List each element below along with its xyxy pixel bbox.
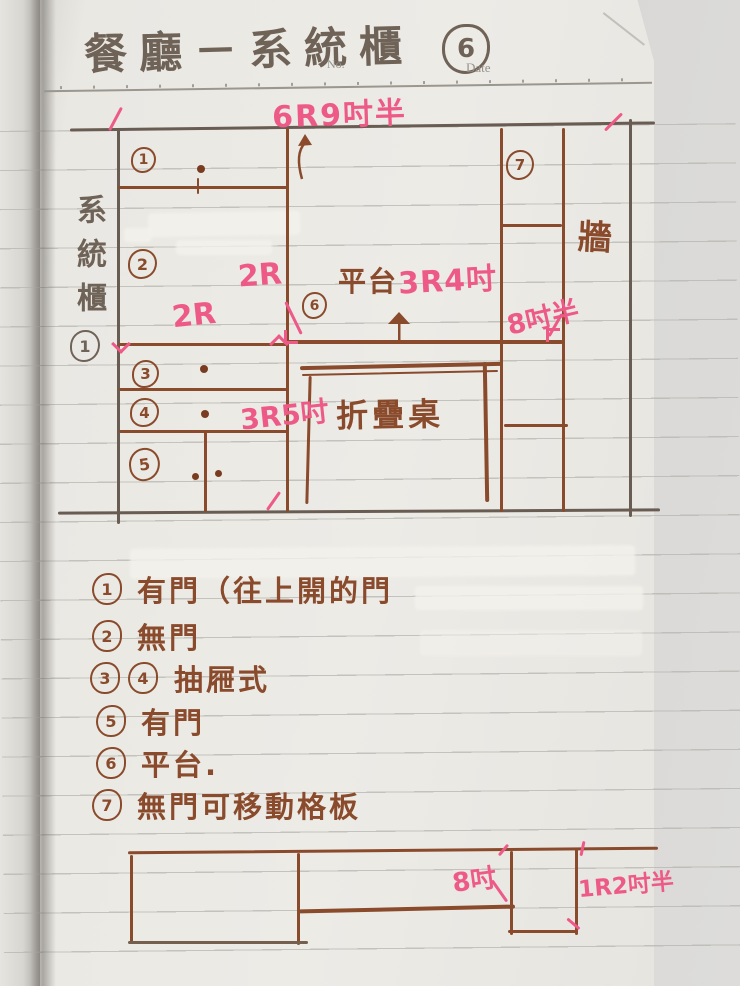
plan-left-box-bottom (128, 941, 308, 944)
legend-row: 2 無門 (92, 615, 201, 657)
legend-text: 平台. (141, 742, 219, 784)
up-arrow-icon (290, 133, 318, 183)
wall-right-edge (629, 119, 632, 517)
door-knob (192, 473, 199, 480)
platform-label: 平台 (338, 260, 398, 300)
legend-num-circle: 6 (96, 747, 126, 779)
plan-right-box-bottom (508, 930, 578, 933)
measure-total-width: 6R9吋半 (271, 88, 407, 137)
legend-row: 6 平台. (96, 742, 219, 784)
whiteout-patch (148, 211, 300, 238)
legend-num-circle: 1 (92, 573, 122, 605)
platform-counter-line (287, 340, 563, 344)
whiteout-patch (420, 630, 642, 656)
plan-left-box-left (130, 855, 133, 943)
folding-table-label: 折疊桌 (336, 389, 445, 437)
legend-text: 有門 (141, 700, 205, 742)
divider-right-column (500, 128, 503, 512)
measure-platform-width: 3R4吋 (397, 253, 498, 302)
door-knob (197, 165, 205, 173)
drawer-divider-1 (119, 388, 287, 391)
plan-measure-depth: 8吋 (450, 857, 499, 900)
shelf-section1-bottom (118, 186, 288, 189)
shelf-center-tick (197, 178, 199, 194)
page-title: 餐廳－系統櫃 (83, 12, 415, 83)
door-center-divider (204, 432, 207, 512)
shelf-right-lower (504, 424, 568, 427)
legend-num-circle: 5 (96, 705, 126, 737)
legend-row: 7 無門可移動格板 (92, 784, 361, 826)
legend-text: 有門（往上開的門 (137, 568, 393, 610)
legend-row: 5 有門 (96, 700, 205, 742)
legend-text: 抽屜式 (174, 657, 270, 699)
whiteout-patch (124, 228, 152, 242)
legend-num-circle: 2 (92, 620, 122, 652)
door-knob (215, 470, 222, 477)
legend-text: 無門 (137, 615, 201, 657)
side-label: 系統櫃 (66, 194, 110, 326)
plan-right-box-right (575, 849, 578, 935)
measure-2r-height: 2R (237, 257, 283, 295)
shelf-right-upper (502, 224, 562, 227)
drawer-knob (200, 365, 208, 373)
whiteout-patch (176, 240, 272, 255)
whiteout-patch (415, 586, 643, 610)
legend-row: 1 有門（往上開的門 (92, 568, 393, 610)
platform-pointer-icon (388, 312, 410, 344)
plan-left-box-right (297, 853, 300, 945)
legend-num-circle: 4 (128, 662, 158, 694)
wall-label: 牆 (577, 209, 614, 260)
measure-2r-width: 2R (170, 296, 217, 335)
drawers-top-edge (118, 343, 288, 346)
date-label: Date (466, 60, 491, 76)
no-label: No. (327, 57, 345, 72)
drawer-knob (201, 410, 209, 418)
legend-num-circle: 3 (90, 662, 120, 694)
plan-right-box-left (510, 851, 513, 935)
gutter-shadow (30, 0, 56, 986)
legend-row: 3 4 抽屜式 (90, 657, 270, 699)
legend-num-circle: 7 (92, 789, 122, 821)
arrowhead-downleft-icon (284, 330, 298, 344)
legend-text: 無門可移動格板 (137, 784, 361, 826)
notebook-photo: 餐廳－系統櫃 6 No. Date 系統櫃 1 1 2 3 4 5 6 7 (0, 0, 740, 986)
